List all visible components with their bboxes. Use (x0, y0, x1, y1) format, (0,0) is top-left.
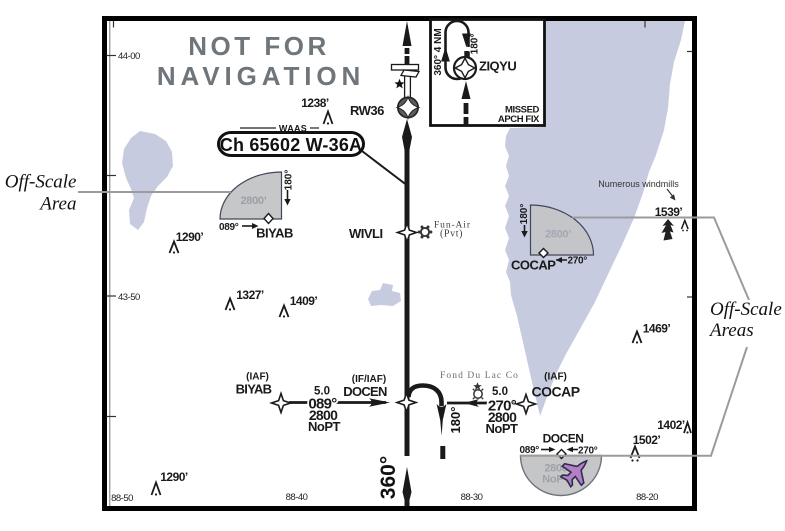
svg-text:RW36: RW36 (350, 103, 384, 118)
svg-text:Off-Scale: Off-Scale (5, 172, 77, 193)
svg-text:1402’: 1402’ (657, 418, 685, 432)
svg-text:180°: 180° (284, 170, 295, 191)
svg-text:5.0: 5.0 (492, 386, 508, 398)
svg-text:089°: 089° (219, 222, 239, 233)
svg-text:88-30: 88-30 (461, 492, 483, 503)
svg-text:(Pvt): (Pvt) (440, 229, 463, 240)
svg-text:Ch 65602 W-36A: Ch 65602 W-36A (220, 135, 363, 155)
svg-text:Off-Scale: Off-Scale (710, 299, 782, 320)
svg-text:43-50: 43-50 (118, 292, 140, 303)
svg-text:Areas: Areas (708, 320, 754, 341)
svg-text:180°: 180° (448, 407, 463, 434)
svg-text:1502’: 1502’ (633, 433, 661, 447)
svg-text:1409’: 1409’ (290, 294, 318, 308)
svg-text:(IAF): (IAF) (544, 372, 567, 383)
svg-text:88-50: 88-50 (111, 493, 133, 504)
svg-text:1290’: 1290’ (176, 230, 204, 244)
svg-text:BIYAB: BIYAB (256, 226, 293, 241)
svg-text:DOCEN: DOCEN (343, 384, 387, 399)
svg-text:1290’: 1290’ (160, 470, 188, 484)
svg-text:360°: 360° (377, 456, 400, 499)
svg-text:NOT FOR: NOT FOR (188, 31, 330, 61)
svg-text:270°: 270° (568, 256, 588, 267)
svg-text:APCH FIX: APCH FIX (498, 114, 540, 125)
svg-text:Area: Area (38, 194, 76, 215)
svg-text:DOCEN: DOCEN (543, 432, 584, 446)
svg-text:NoPT: NoPT (308, 419, 341, 434)
svg-text:COCAP: COCAP (511, 258, 556, 273)
svg-text:WIVLI: WIVLI (349, 226, 383, 241)
svg-text:360° 4 NM: 360° 4 NM (433, 28, 444, 75)
svg-text:180°: 180° (470, 34, 481, 55)
svg-text:1469’: 1469’ (643, 322, 671, 336)
svg-text:88-20: 88-20 (636, 492, 658, 503)
svg-text:Fond Du Lac Co: Fond Du Lac Co (440, 371, 519, 381)
svg-text:44-00: 44-00 (118, 51, 140, 62)
svg-text:ZIQYU: ZIQYU (479, 59, 516, 74)
svg-text:089°: 089° (520, 445, 540, 456)
svg-text:NoPT: NoPT (486, 421, 519, 436)
svg-text:Numerous windmills: Numerous windmills (598, 179, 679, 189)
svg-text:1327’: 1327’ (236, 288, 264, 302)
svg-text:NAVIGATION: NAVIGATION (157, 61, 365, 91)
svg-text:COCAP: COCAP (532, 384, 580, 400)
svg-text:2800’: 2800’ (545, 229, 571, 241)
svg-text:88-40: 88-40 (286, 492, 308, 503)
svg-text:2800’: 2800’ (240, 195, 266, 207)
svg-text:BIYAB: BIYAB (236, 382, 272, 397)
svg-text:180°: 180° (519, 204, 530, 225)
svg-text:1238’: 1238’ (301, 96, 329, 110)
